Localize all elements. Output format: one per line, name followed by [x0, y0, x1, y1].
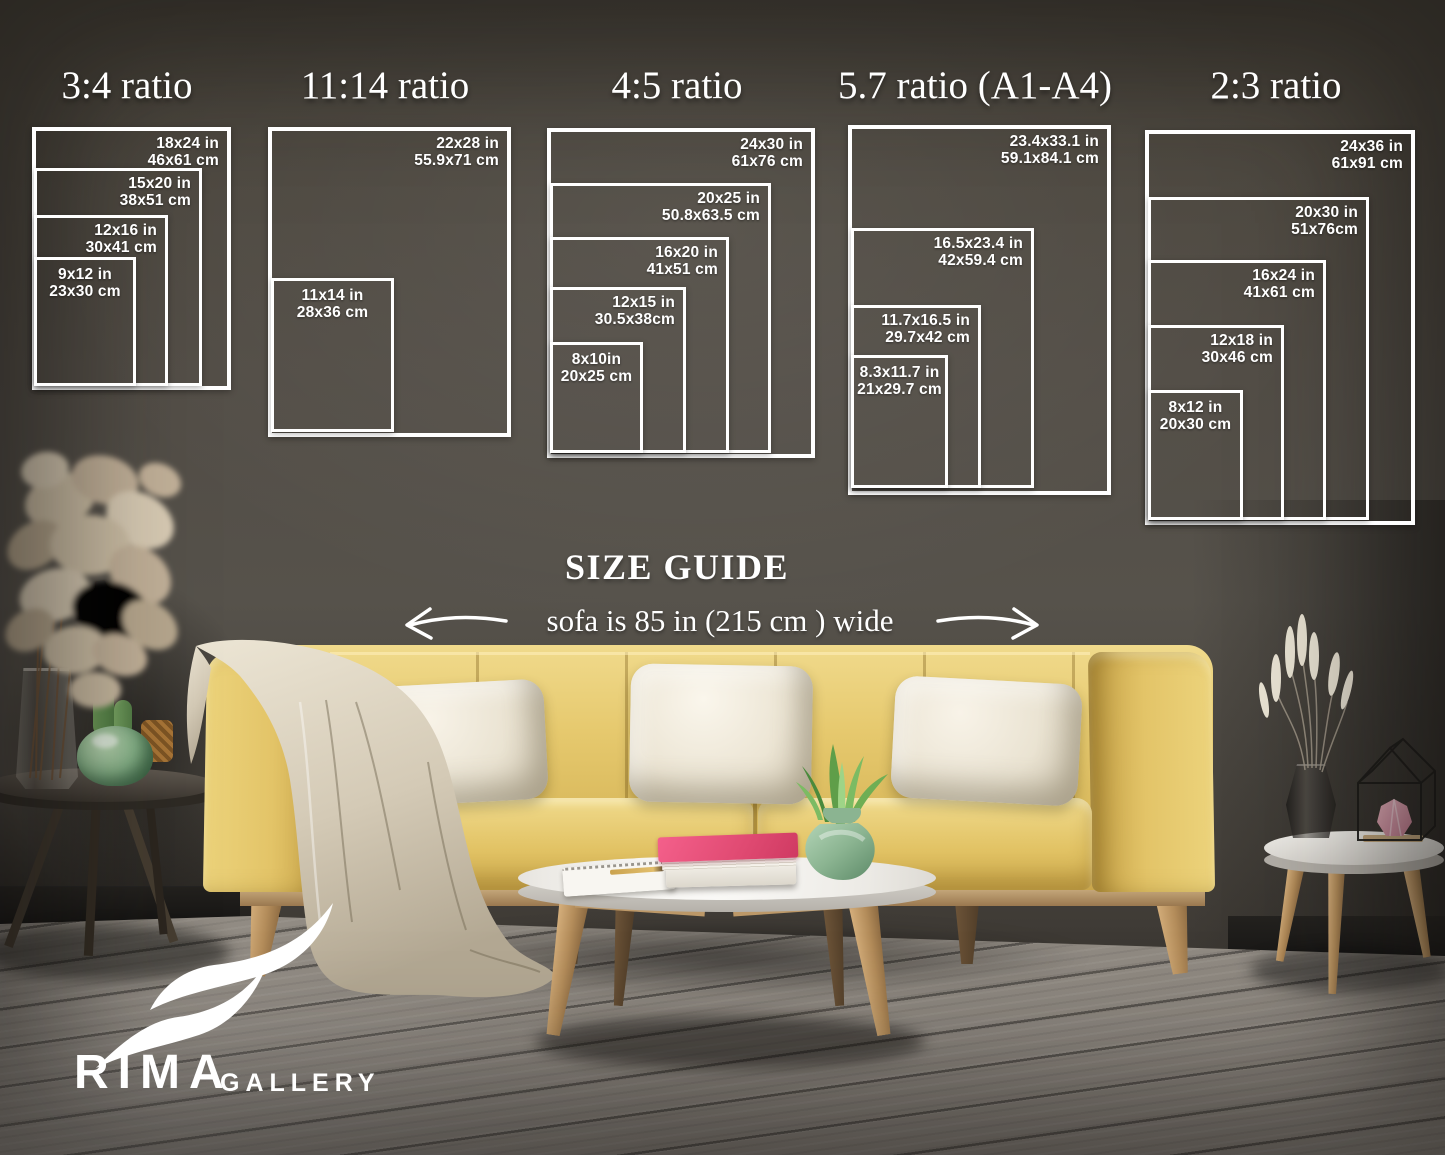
- logo-brand-text: RIMA: [74, 1049, 233, 1097]
- size-guide-poster: 3:4 ratio 18x24 in46x61 cm 15x20 in38x51…: [0, 0, 1445, 1155]
- logo-swoosh-icon: [96, 903, 333, 1068]
- arrow-right-icon: [938, 609, 1037, 638]
- logo-suffix-text: GALLERY: [220, 1071, 381, 1096]
- annotation-arrows: [0, 0, 1445, 1155]
- arrow-left-icon: [407, 609, 506, 638]
